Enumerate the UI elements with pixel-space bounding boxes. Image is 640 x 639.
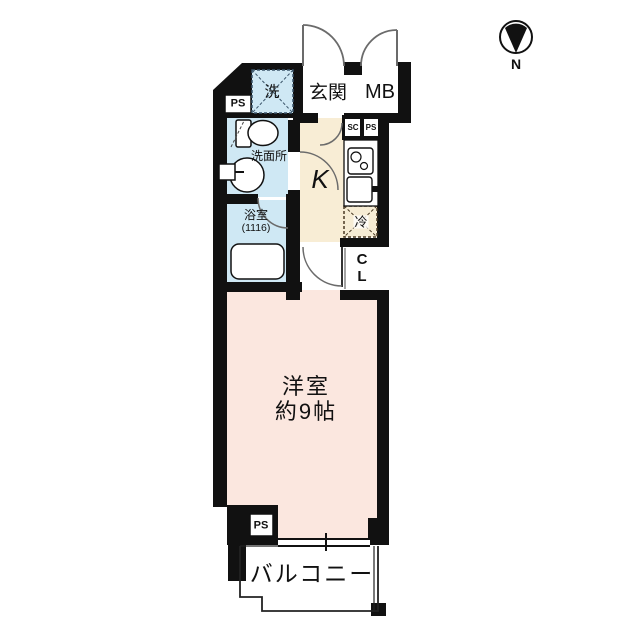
closet-label: C L (357, 252, 368, 284)
bathroom-size-label: (1116) (242, 223, 271, 234)
basin-faucet (219, 164, 235, 180)
laundry-label: 洗 (264, 85, 279, 100)
balcony-label: バルコニー (250, 563, 375, 586)
wall-bathroom-bottom (213, 282, 302, 292)
ps-bottom-label: PS (254, 521, 269, 532)
entrance-label: 玄関 (309, 84, 347, 103)
wall-washroom-bottom (213, 194, 258, 204)
north-arrow (500, 21, 532, 53)
closet-label-l: L (357, 269, 366, 284)
room-door-arc (303, 247, 342, 286)
kitchen-sink-icon (347, 177, 372, 202)
wall-washroom-right-a (288, 120, 300, 152)
kitchen-sink-faucet (372, 186, 381, 192)
north-label: N (511, 57, 521, 71)
kitchen-label: K (311, 166, 328, 192)
wall-closet-top (340, 238, 389, 247)
wall-right-lower (377, 300, 389, 540)
shoe-closet-label: SC (347, 124, 358, 132)
toilet-bowl (248, 121, 278, 146)
wall-balcony-left-bar (228, 545, 246, 581)
bathtub (231, 244, 284, 279)
entry-door-arc (303, 25, 344, 66)
washroom-label: 洗面所 (251, 150, 287, 162)
main-room-size: 約9帖 (275, 401, 337, 423)
main-room-floor-right (345, 298, 378, 542)
mb-door-arc (361, 30, 397, 66)
closet-label-c: C (357, 252, 368, 267)
floor-plan: PS 洗 玄関 MB SC PS 洗面所 K 浴室 (1116) 冷 C L 洋… (0, 0, 640, 639)
wall-closet-bottom (340, 290, 389, 300)
stove-icon (348, 148, 373, 174)
wall-bottom-right-block (368, 518, 389, 545)
meter-box-label: MB (365, 82, 395, 102)
bathroom-label: 浴室 (244, 209, 268, 221)
ps-top-label: PS (231, 99, 246, 110)
wall-left (213, 100, 227, 507)
wall-between-doors (344, 62, 362, 75)
ps-kitchen-label: PS (366, 124, 377, 132)
refrigerator-label: 冷 (353, 216, 368, 229)
main-room-name: 洋室 (282, 376, 330, 398)
wall-top-right (398, 62, 411, 113)
